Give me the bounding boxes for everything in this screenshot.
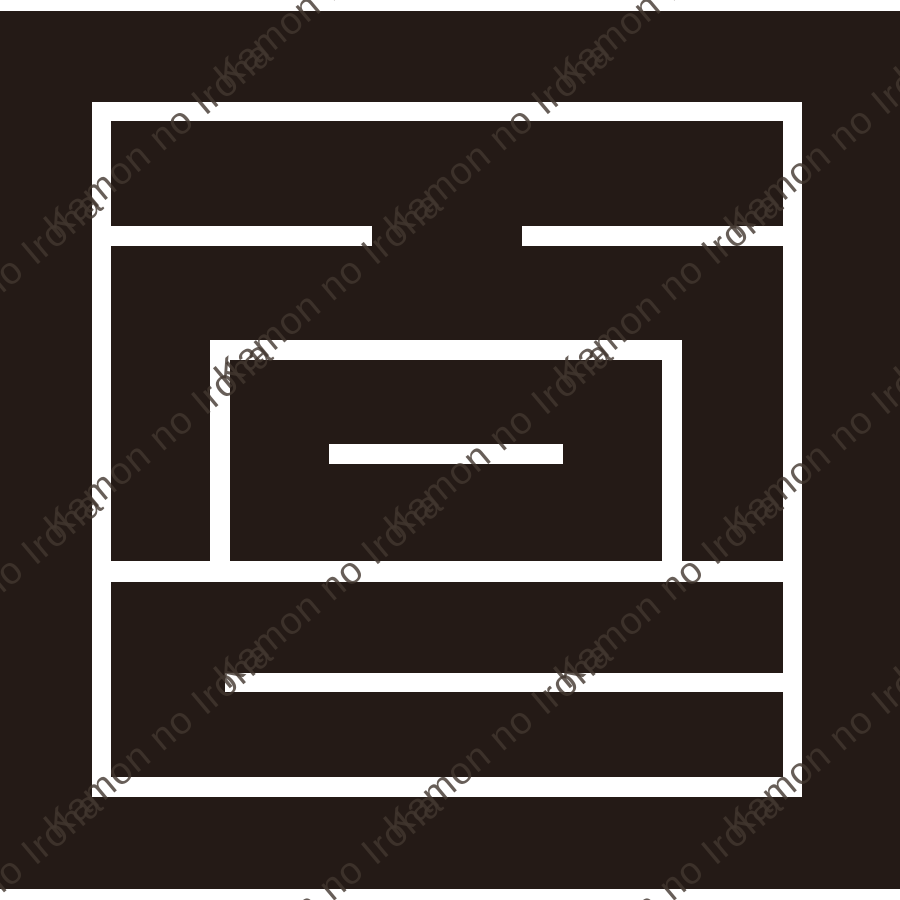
crest-upper-bar-left-segment	[111, 226, 372, 246]
crest-inner-rect-right	[662, 340, 682, 562]
crest-lower-bar	[225, 673, 783, 692]
crest-outer-frame-right	[783, 102, 802, 797]
crest-inner-rect-top	[210, 340, 682, 360]
crest-upper-bar-right-segment	[522, 226, 783, 246]
crest-outer-frame-bottom	[92, 777, 802, 797]
crest-middle-line	[111, 561, 783, 582]
crest-inner-rect-left	[210, 340, 230, 562]
kamon-image: Kamon no IrohaKamon no IrohaKamon no Iro…	[0, 0, 900, 900]
crest-outer-frame-left	[92, 102, 111, 797]
crest-outer-frame-top	[92, 102, 802, 121]
crest-center-bar	[329, 444, 563, 464]
